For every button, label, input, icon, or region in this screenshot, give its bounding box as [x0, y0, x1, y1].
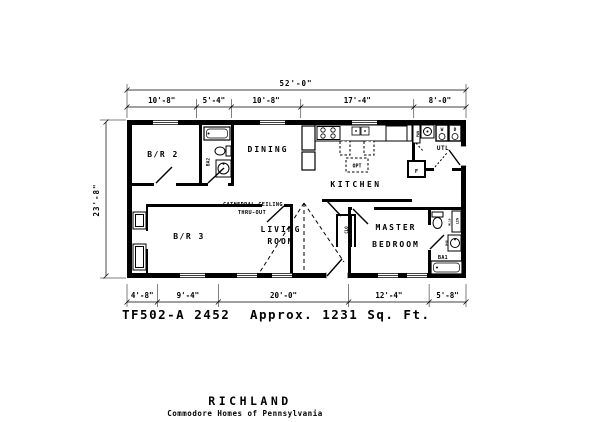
dim-top-3: 10'-8": [253, 96, 280, 105]
dim-top-2: 5'-4": [203, 96, 226, 105]
label-linen: LIN: [456, 218, 460, 224]
room-label-master-1: MASTER: [376, 223, 417, 232]
dim-bottom-5: 5'-8": [436, 291, 459, 300]
dim-bottom-2: 9'-4": [177, 291, 200, 300]
dim-overall-depth: 23'-8": [92, 183, 101, 216]
floor-plan-drawing: B/R 2 DINING KITCHEN LIVING ROOM MASTER …: [0, 0, 600, 422]
floor-plan-page: B/R 2 DINING KITCHEN LIVING ROOM MASTER …: [0, 0, 600, 422]
window: [180, 273, 205, 279]
room-label-dining: DINING: [248, 145, 289, 154]
label-cab2: M48: [445, 240, 449, 246]
label-dryer: D: [454, 127, 457, 133]
room-label-ba2: BA2: [206, 158, 212, 166]
company-name: Commodore Homes of Pennsylvania: [167, 409, 322, 418]
exterior-walls: [127, 120, 466, 278]
refrigerator: [386, 126, 407, 141]
window: [260, 120, 285, 126]
window: [407, 273, 427, 279]
label-washer: W: [441, 127, 444, 133]
note-cathedral-2: THRU-OUT: [238, 210, 266, 216]
note-cathedral-1: CATHEDRAL CEILING: [223, 202, 283, 208]
label-cab1: ML18: [448, 218, 452, 225]
room-label-living-1: LIVING: [261, 225, 302, 234]
area-text: Approx. 1231 Sq. Ft.: [250, 307, 431, 322]
range: [317, 127, 340, 140]
window: [378, 273, 398, 279]
dim-top-1: 10'-8": [148, 96, 175, 105]
dim-top-5: 8'-0": [429, 96, 452, 105]
label-entry-closet: CLO: [344, 226, 349, 234]
label-furnace: F: [415, 169, 418, 175]
plan-name: RICHLAND: [208, 394, 291, 408]
dim-bottom-4: 12'-4": [375, 291, 402, 300]
dining-cabinet: [302, 126, 315, 150]
room-label-kitchen: KITCHEN: [330, 180, 381, 189]
room-label-utl: UTL: [437, 145, 449, 152]
room-label-br3: B/R 3: [173, 232, 205, 241]
window: [272, 273, 292, 279]
bath1-toilet: [432, 212, 443, 217]
dim-top-4: 17'-4": [344, 96, 371, 105]
dim-bottom-1: 4'-8": [131, 291, 154, 300]
label-pantry: PAN: [416, 131, 420, 137]
model-number: TF502-A 2452: [122, 307, 230, 322]
room-label-ba1: BA1: [438, 255, 448, 261]
label-opt: OPT: [352, 164, 361, 170]
title-block: TF502-A 2452 Approx. 1231 Sq. Ft. RICHLA…: [122, 307, 431, 418]
window: [153, 120, 178, 126]
dim-overall-width: 52'-0": [279, 79, 312, 88]
dim-bottom-3: 20'-0": [270, 291, 297, 300]
room-label-master-2: BEDROOM: [372, 240, 420, 249]
window: [237, 273, 257, 279]
utility-door-opening: [461, 146, 467, 166]
room-label-living-2: ROOM: [267, 237, 294, 246]
room-label-br2: B/R 2: [147, 150, 179, 159]
bath2-toilet: [226, 146, 231, 156]
